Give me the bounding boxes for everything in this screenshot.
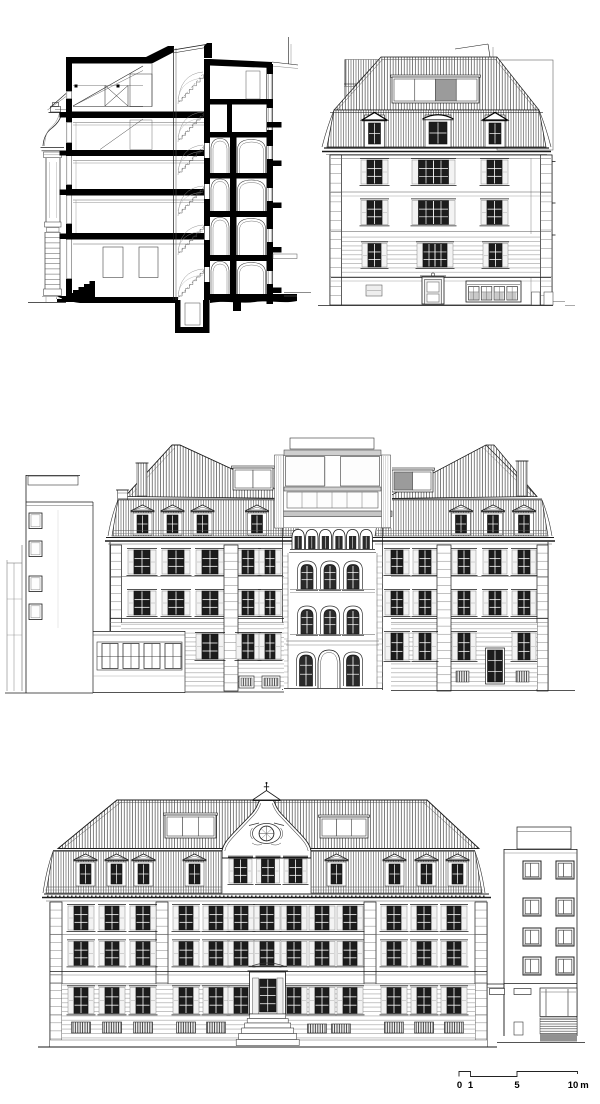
svg-text:10: 10	[568, 1080, 579, 1091]
svg-text:1: 1	[468, 1080, 474, 1091]
svg-text:5: 5	[514, 1080, 520, 1091]
svg-text:0: 0	[457, 1080, 462, 1091]
svg-text:m: m	[580, 1080, 588, 1091]
